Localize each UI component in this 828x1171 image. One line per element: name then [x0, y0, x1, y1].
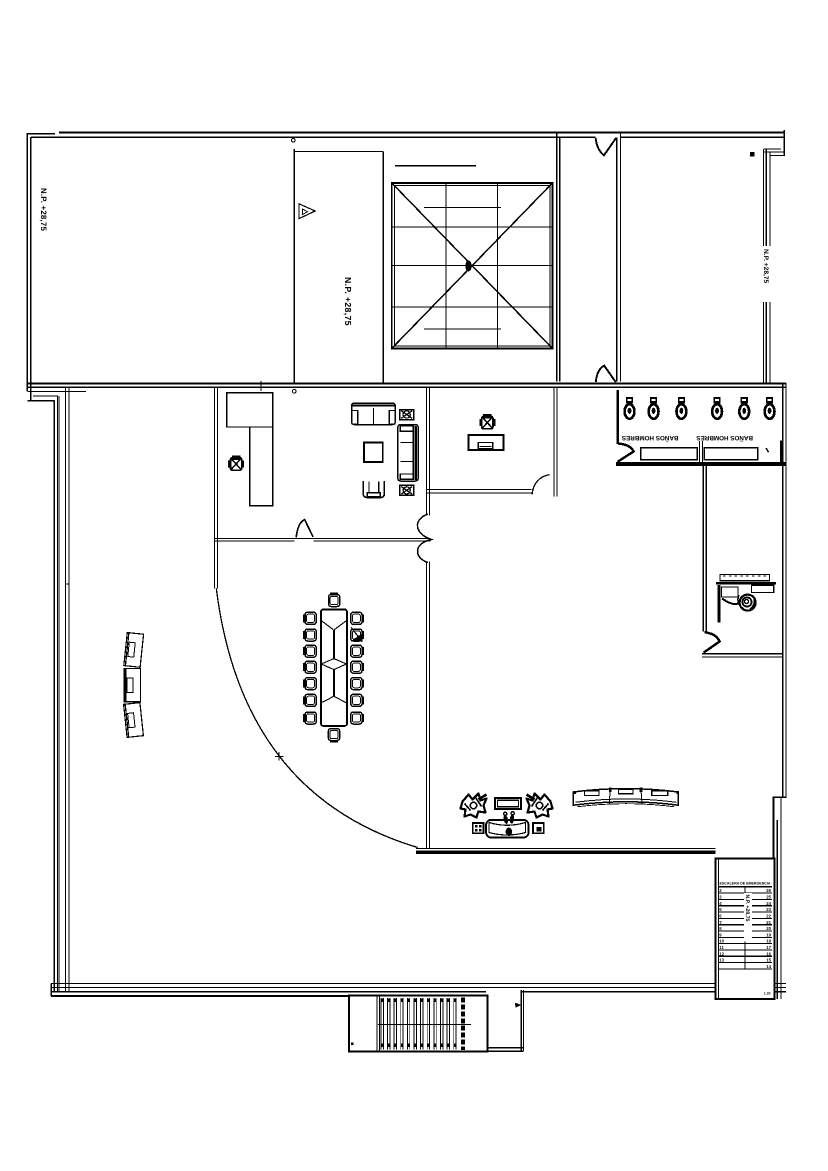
svg-text:12: 12 — [719, 951, 724, 956]
svg-text:N.P. +28,75: N.P. +28,75 — [762, 249, 769, 283]
svg-text:21: 21 — [766, 920, 771, 925]
svg-text:16: 16 — [766, 951, 771, 956]
svg-text:14: 14 — [766, 964, 771, 969]
svg-text:10: 10 — [719, 939, 724, 944]
svg-text:BAÑOS HOMBRES: BAÑOS HOMBRES — [622, 434, 679, 442]
svg-text:1.20: 1.20 — [764, 992, 771, 996]
svg-text:BAÑOS HOMBRES: BAÑOS HOMBRES — [696, 434, 753, 442]
svg-text:25: 25 — [766, 895, 771, 900]
svg-text:17: 17 — [766, 945, 771, 950]
svg-text:18: 18 — [766, 939, 771, 944]
svg-text:11: 11 — [719, 945, 724, 950]
svg-text:19: 19 — [766, 932, 771, 937]
svg-text:26: 26 — [766, 888, 771, 893]
svg-text:N.P. +28,75: N.P. +28,75 — [39, 188, 48, 231]
svg-text:N.P. +28,75: N.P. +28,75 — [744, 895, 750, 922]
svg-text:N.P. +28,75: N.P. +28,75 — [343, 277, 353, 326]
svg-text:24: 24 — [766, 901, 771, 906]
svg-text:ESCALERA DE EMERGENCIA: ESCALERA DE EMERGENCIA — [720, 881, 771, 885]
svg-text:15: 15 — [766, 958, 771, 963]
svg-text:22: 22 — [766, 913, 771, 918]
svg-text:13: 13 — [719, 958, 724, 963]
svg-text:20: 20 — [766, 926, 771, 931]
svg-text:23: 23 — [766, 907, 771, 912]
